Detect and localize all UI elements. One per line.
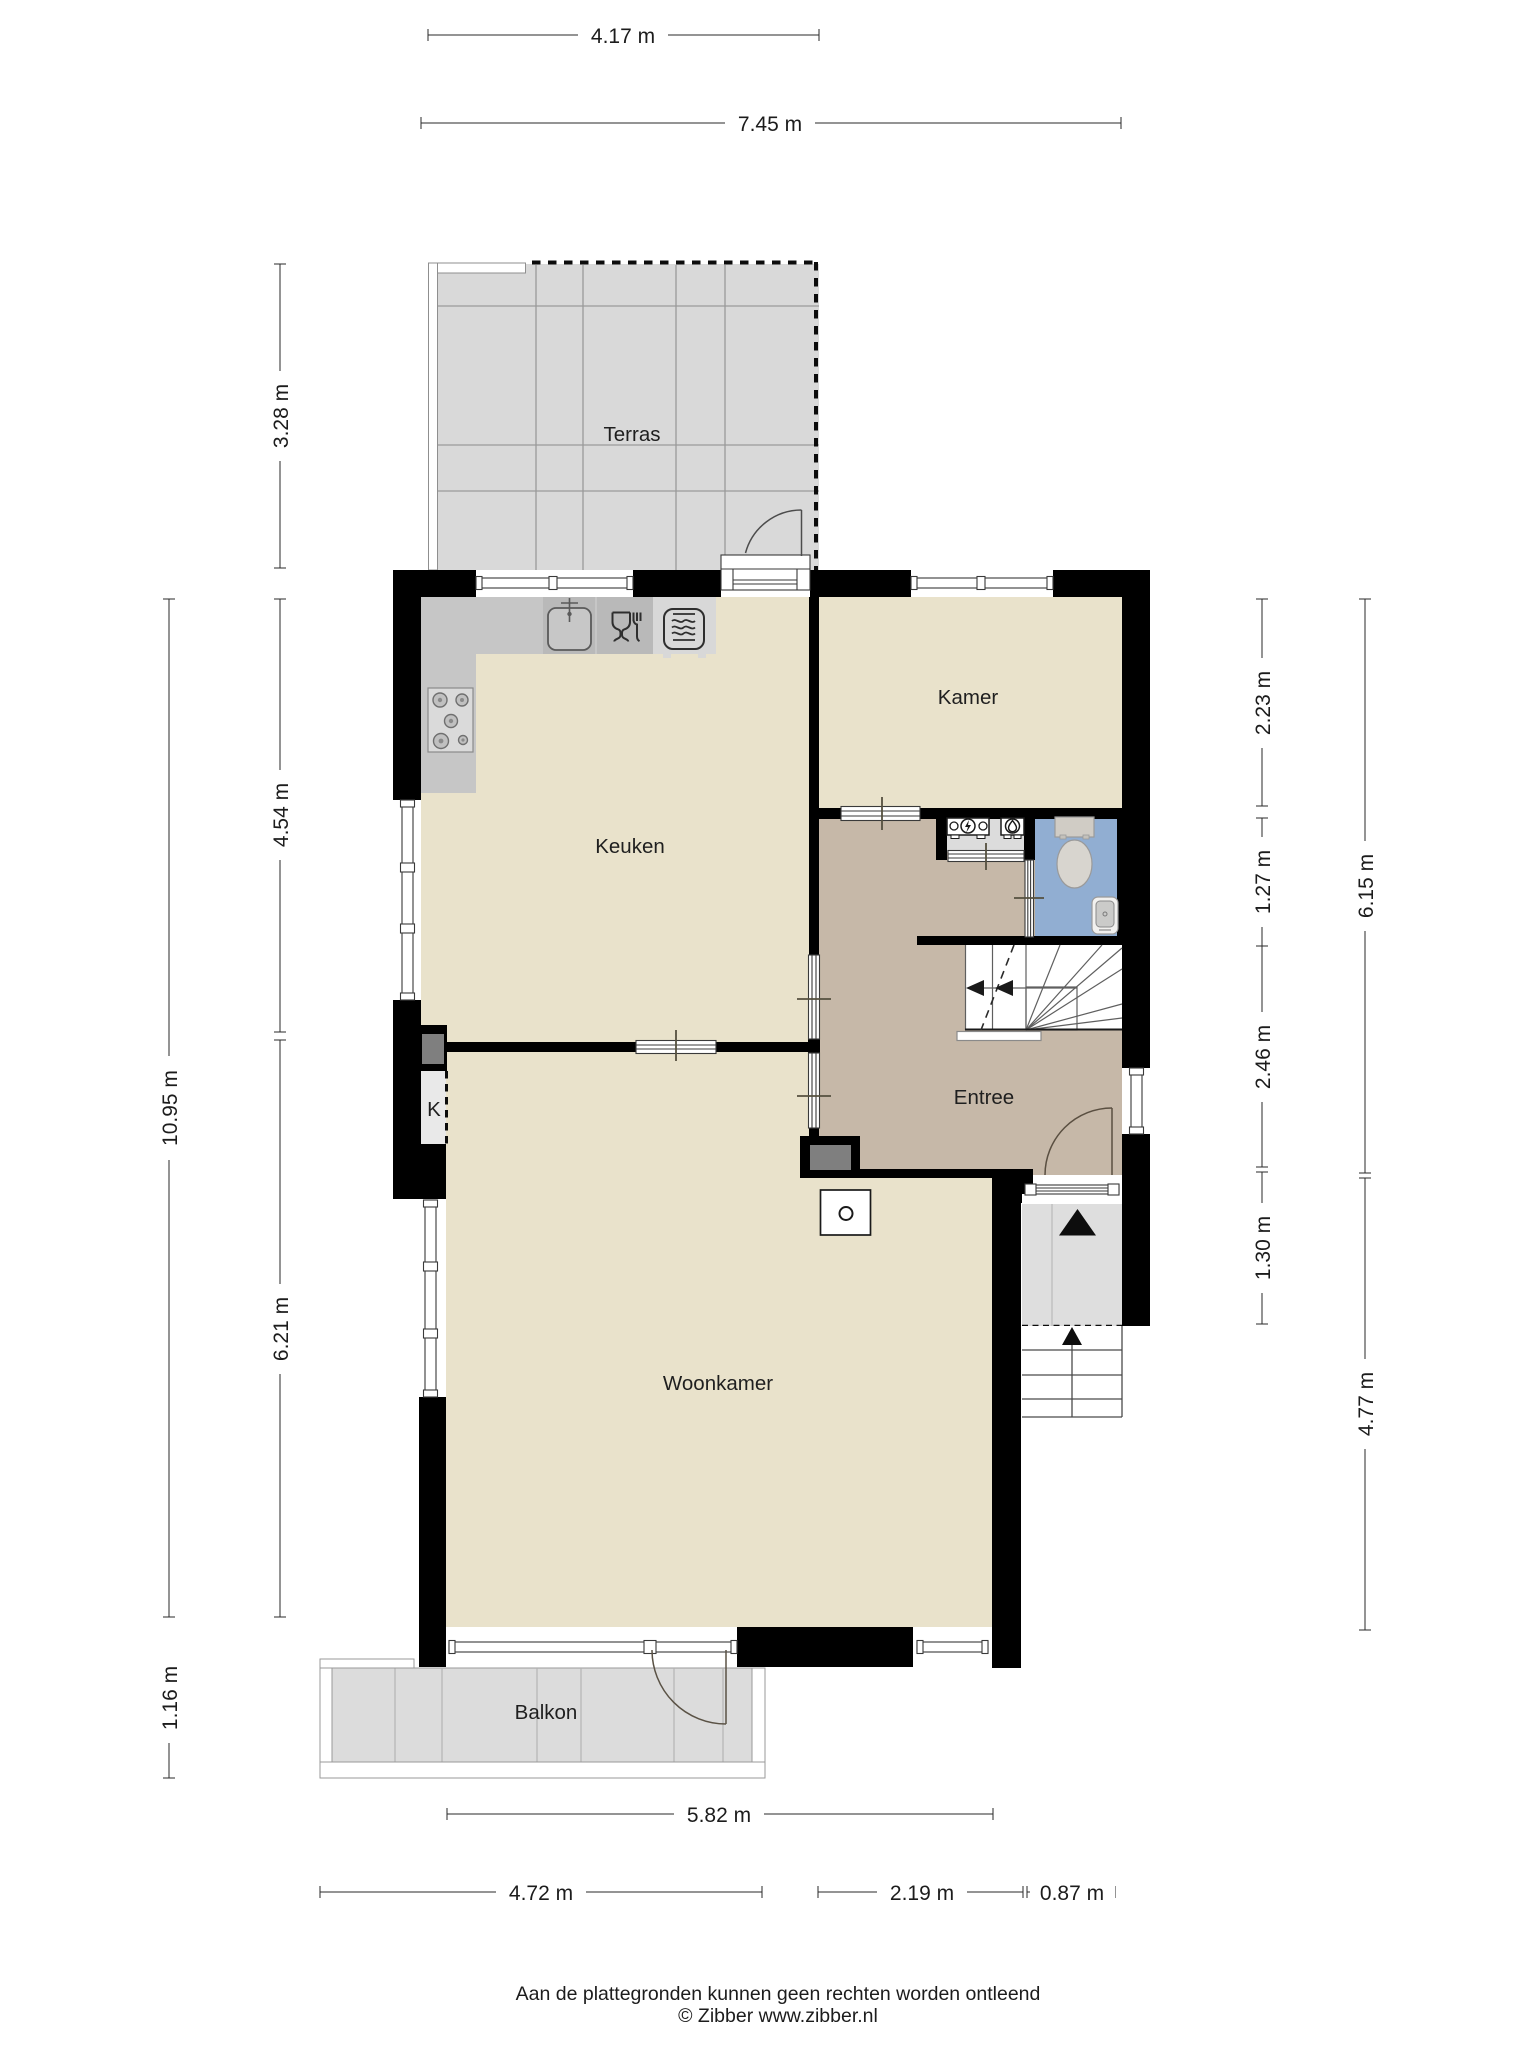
svg-text:Entree: Entree [954,1086,1014,1109]
svg-text:1.27 m: 1.27 m [1252,850,1275,914]
svg-text:K: K [427,1098,441,1121]
svg-text:Aan de plattegronden kunnen ge: Aan de plattegronden kunnen geen rechten… [516,1983,1041,2005]
svg-text:4.54 m: 4.54 m [270,783,293,847]
svg-text:0.87 m: 0.87 m [1040,1882,1104,1905]
svg-text:4.72 m: 4.72 m [509,1882,573,1905]
svg-text:Woonkamer: Woonkamer [663,1372,773,1395]
svg-text:7.45 m: 7.45 m [738,113,802,136]
svg-text:Kamer: Kamer [938,686,999,709]
svg-text:4.17 m: 4.17 m [591,25,655,48]
svg-text:2.46 m: 2.46 m [1252,1025,1275,1089]
svg-text:3.28 m: 3.28 m [270,384,293,448]
svg-text:10.95 m: 10.95 m [159,1070,182,1146]
svg-text:5.82 m: 5.82 m [687,1804,751,1827]
svg-text:2.23 m: 2.23 m [1252,671,1275,735]
svg-text:2.19 m: 2.19 m [890,1882,954,1905]
svg-text:Keuken: Keuken [595,835,665,858]
svg-text:© Zibber www.zibber.nl: © Zibber www.zibber.nl [678,2005,878,2027]
svg-text:1.16 m: 1.16 m [159,1666,182,1730]
svg-text:6.15 m: 6.15 m [1355,854,1378,918]
svg-text:4.77 m: 4.77 m [1355,1372,1378,1436]
svg-text:6.21 m: 6.21 m [270,1297,293,1361]
svg-text:Balkon: Balkon [515,1701,578,1724]
svg-text:Terras: Terras [604,423,661,446]
svg-text:1.30 m: 1.30 m [1252,1216,1275,1280]
